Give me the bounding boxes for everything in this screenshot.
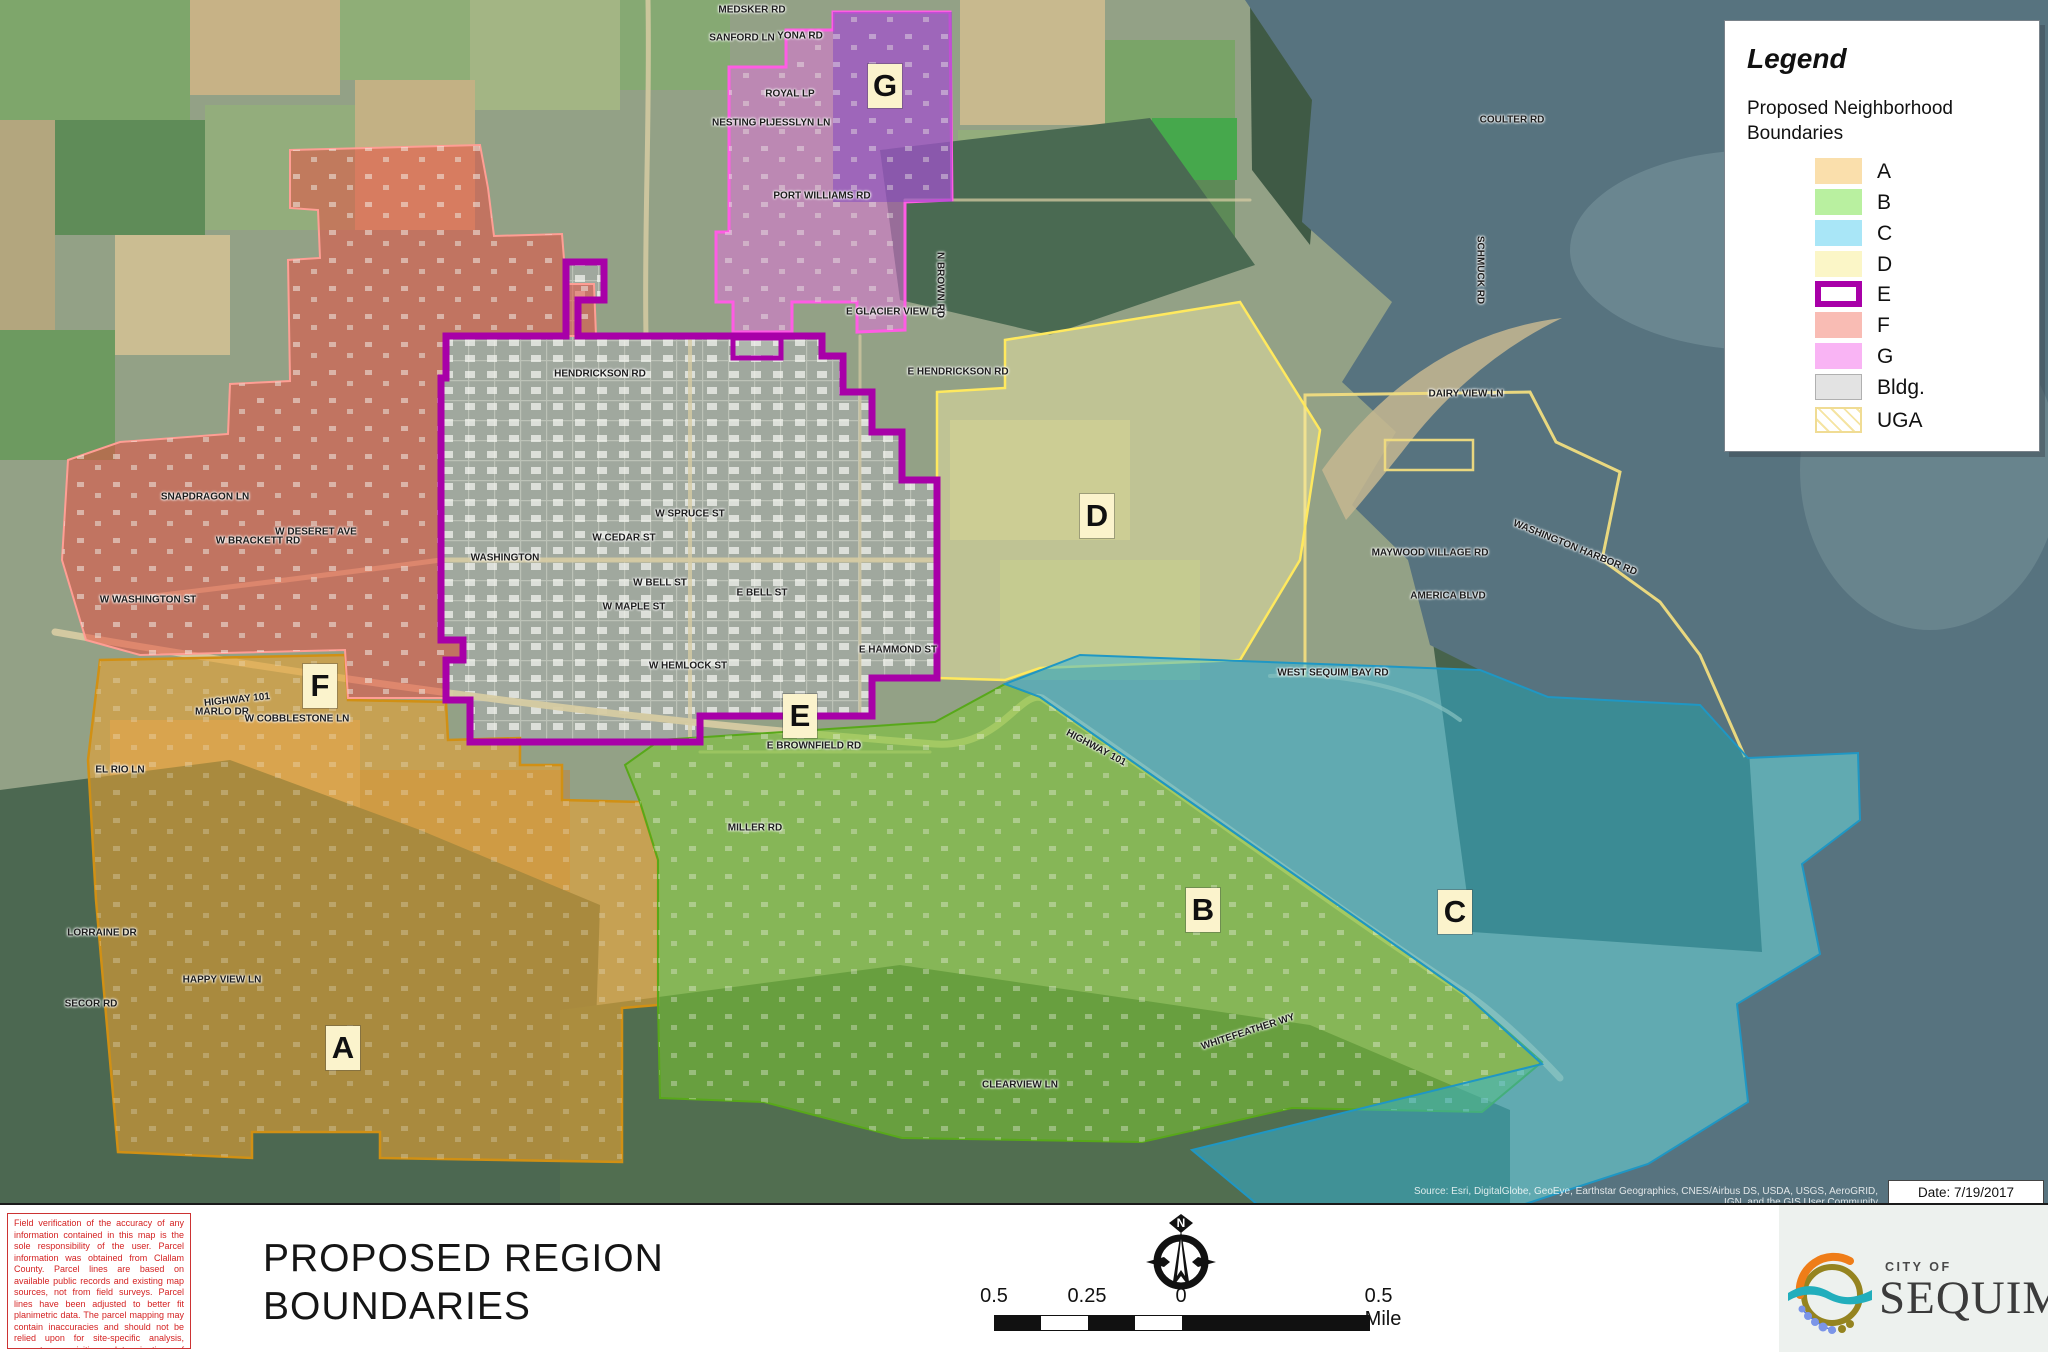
region-label-e: E bbox=[783, 694, 817, 738]
street-label: EL RIO LN bbox=[95, 765, 144, 776]
legend-swatch-bldg bbox=[1815, 374, 1862, 400]
street-label: ROYAL LP bbox=[765, 89, 814, 100]
legend-panel: Legend Proposed Neighborhood Boundaries … bbox=[1724, 20, 2040, 452]
street-label: E BROWNFIELD RD bbox=[767, 741, 861, 752]
street-label: E GLACIER VIEW DR bbox=[846, 307, 946, 318]
logo-sequim: SEQUIM bbox=[1879, 1271, 2048, 1325]
legend-swatch-b bbox=[1815, 189, 1862, 215]
street-label: WASHINGTON bbox=[471, 553, 540, 564]
footer-bar: Field verification of the accuracy of an… bbox=[0, 1205, 2048, 1352]
street-label: COULTER RD bbox=[1480, 115, 1545, 126]
street-label: MARLO DR bbox=[195, 707, 249, 718]
compass-north-letter: N bbox=[1177, 1216, 1186, 1230]
street-label: WEST SEQUIM BAY RD bbox=[1277, 668, 1388, 679]
street-label: SANFORD LN bbox=[709, 33, 775, 44]
street-label: MAYWOOD VILLAGE RD bbox=[1372, 548, 1489, 559]
scale-label-right: 0.5 Mile bbox=[1365, 1285, 1402, 1331]
page-title: PROPOSED REGION BOUNDARIES bbox=[263, 1235, 664, 1330]
legend-swatch-uga bbox=[1815, 407, 1862, 433]
street-label: W MAPLE ST bbox=[603, 602, 666, 613]
street-label: E HENDRICKSON RD bbox=[907, 367, 1008, 378]
legend-subtitle: Proposed Neighborhood Boundaries bbox=[1747, 97, 1957, 146]
street-label: E HAMMOND ST bbox=[859, 645, 937, 656]
scale-label-quarter: 0.25 bbox=[1068, 1285, 1107, 1308]
sequim-emblem-icon bbox=[1788, 1243, 1872, 1339]
street-label: W DESERET AVE bbox=[275, 527, 357, 538]
region-label-a: A bbox=[326, 1026, 360, 1070]
street-label: CLEARVIEW LN bbox=[982, 1080, 1058, 1091]
legend-swatch-a bbox=[1815, 158, 1862, 184]
city-logo: CITY OF SEQUIM bbox=[1779, 1205, 2048, 1352]
street-label: LORRAINE DR bbox=[67, 928, 136, 939]
region-label-c: C bbox=[1438, 890, 1472, 934]
street-label: JESSLYN LN bbox=[770, 118, 831, 129]
street-label: W COBBLESTONE LN bbox=[245, 714, 350, 725]
street-label: N BROWN RD bbox=[935, 252, 946, 318]
street-label: MILLER RD bbox=[728, 823, 782, 834]
legend-swatch-e bbox=[1815, 281, 1862, 307]
scale-label-zero: 0 bbox=[1175, 1285, 1186, 1308]
street-label: W BELL ST bbox=[633, 578, 687, 589]
street-label: DAIRY VIEW LN bbox=[1428, 389, 1503, 400]
street-label: NESTING PL bbox=[712, 118, 772, 129]
legend-swatch-c bbox=[1815, 220, 1862, 246]
street-label: HAPPY VIEW LN bbox=[183, 975, 262, 986]
street-label: HENDRICKSON RD bbox=[554, 369, 646, 380]
street-label: W CEDAR ST bbox=[592, 533, 655, 544]
street-label: W WASHINGTON ST bbox=[100, 595, 196, 606]
street-label: SECOR RD bbox=[65, 999, 118, 1010]
street-label: MEDSKER RD bbox=[718, 5, 785, 16]
page: Date: 7/19/2017 Source: Esri, DigitalGlo… bbox=[0, 0, 2048, 1352]
street-label: W HEMLOCK ST bbox=[649, 661, 727, 672]
disclaimer-text: Field verification of the accuracy of an… bbox=[14, 1218, 184, 1349]
legend-swatch-f bbox=[1815, 312, 1862, 338]
region-label-d: D bbox=[1080, 494, 1114, 538]
scale-bar-segments bbox=[994, 1315, 1370, 1331]
street-label: E BELL ST bbox=[737, 588, 788, 599]
scale-bar: 0.5 0.25 0 0.5 Mile bbox=[994, 1285, 1394, 1341]
street-label: YONA RD bbox=[777, 31, 823, 42]
region-label-g: G bbox=[868, 64, 902, 108]
region-label-f: F bbox=[303, 664, 337, 708]
street-label: PORT WILLIAMS RD bbox=[773, 191, 870, 202]
legend-swatch-g bbox=[1815, 343, 1862, 369]
map-date: Date: 7/19/2017 bbox=[1888, 1180, 2044, 1205]
region-label-b: B bbox=[1186, 888, 1220, 932]
legend-title: Legend bbox=[1747, 43, 2039, 75]
region-e-detached-parcel bbox=[733, 338, 781, 358]
street-label: AMERICA BLVD bbox=[1410, 591, 1486, 602]
disclaimer-box: Field verification of the accuracy of an… bbox=[7, 1213, 191, 1349]
street-label: W SPRUCE ST bbox=[655, 509, 724, 520]
street-label: SCHMUCK RD bbox=[1475, 236, 1486, 304]
legend-swatch-d bbox=[1815, 251, 1862, 277]
map-attribution: Source: Esri, DigitalGlobe, GeoEye, Eart… bbox=[1400, 1186, 1878, 1205]
street-label: SNAPDRAGON LN bbox=[161, 492, 249, 503]
scale-label-left: 0.5 bbox=[980, 1285, 1008, 1308]
